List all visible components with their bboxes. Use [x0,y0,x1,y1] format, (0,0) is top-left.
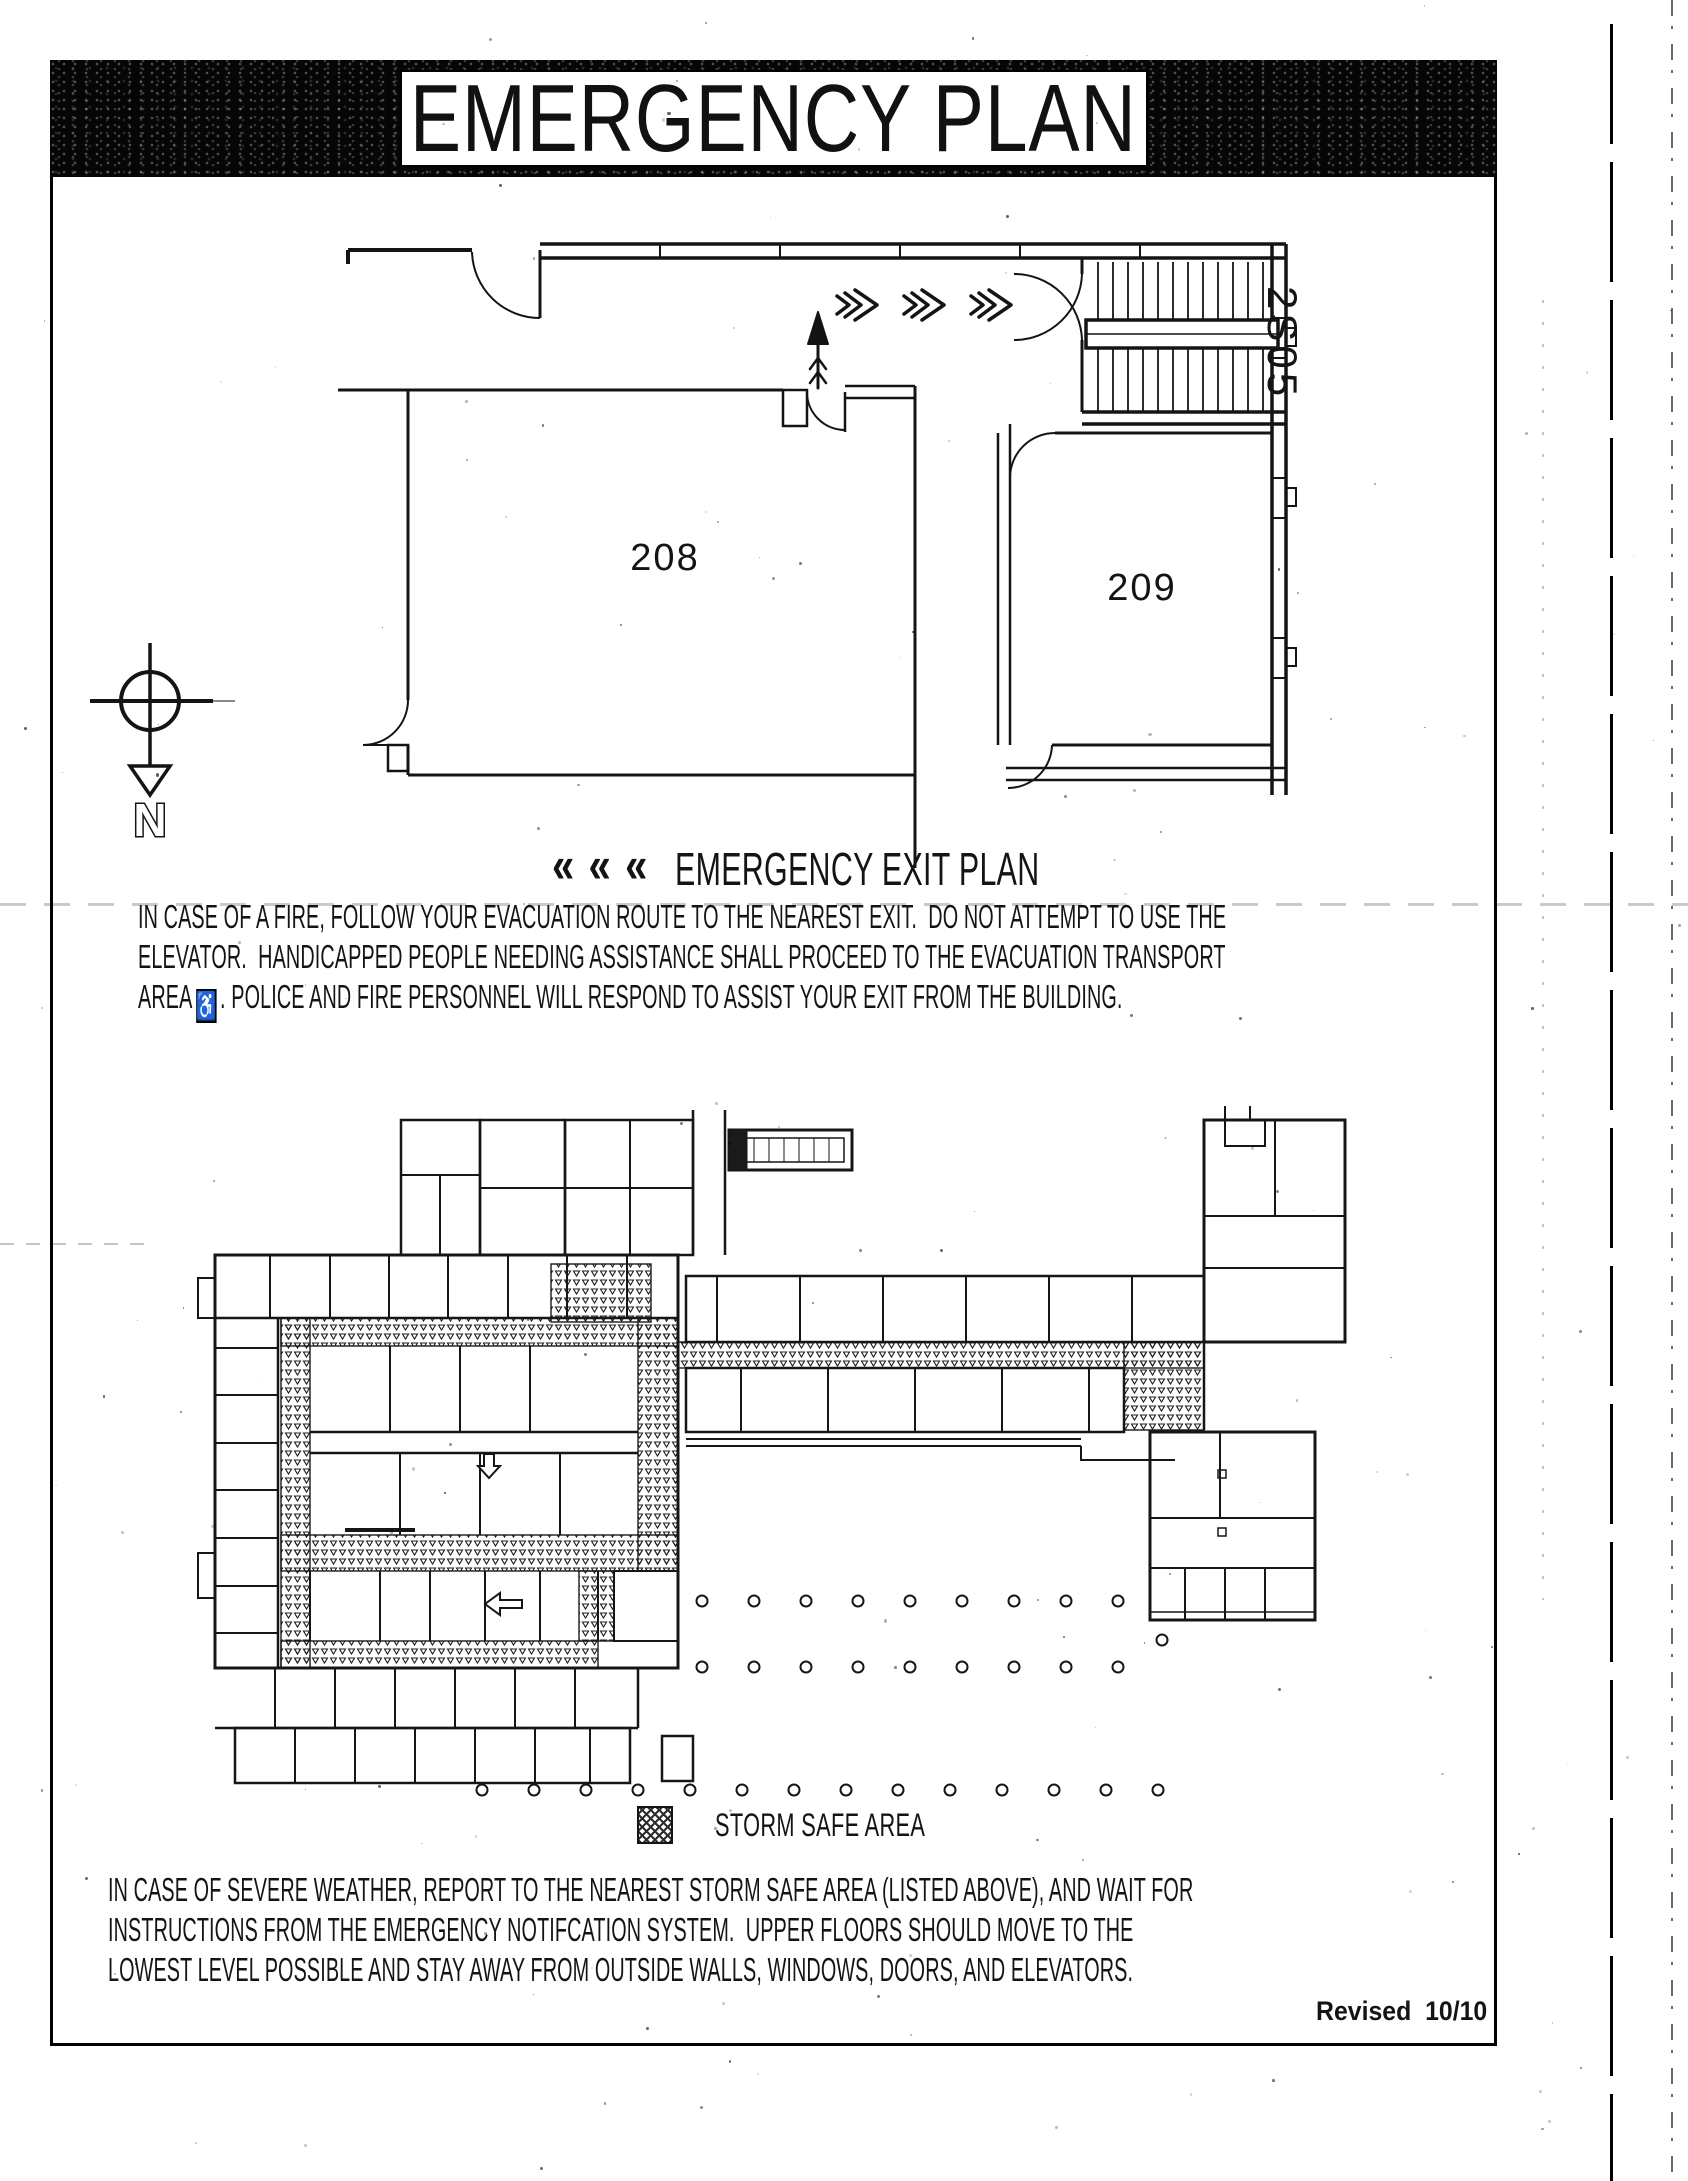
scan-noise-dot [700,2106,703,2109]
storm-notice-line2: INSTRUCTIONS FROM THE EMERGENCY NOTIFCAT… [108,1910,1193,1950]
scan-noise-dot [489,38,492,41]
scan-noise-dot [1424,5,1425,6]
banner: EMERGENCY PLAN [50,60,1497,177]
fire-notice-line3: AREA♿. POLICE AND FIRE PERSONNEL WILL RE… [138,977,1226,1023]
scan-noise-dot [1633,555,1635,557]
compass-icon [90,643,235,795]
scan-noise-dot [1532,1827,1535,1830]
scan-noise-dot [24,727,27,730]
exit-plan-heading: EMERGENCY EXIT PLAN [675,842,1040,896]
storm-legend: STORM SAFE AREA [637,1806,1024,1844]
scan-noise-dot [1541,2128,1544,2131]
scan-noise-dot [41,1007,43,1009]
scan-noise-dot [1539,2090,1542,2093]
scan-noise-dot [304,2144,307,2147]
scan-noise-dot [540,2167,543,2170]
scan-noise-dot [1518,1853,1519,1854]
wheelchair-icon: ♿ [196,989,216,1023]
storm-legend-label: STORM SAFE AREA [715,1807,925,1844]
upper-floor-plan: 208 209 2S05 [330,228,1310,878]
fire-notice: IN CASE OF A FIRE, FOLLOW YOUR EVACUATIO… [138,897,1688,1023]
exit-heading-row: « « « EMERGENCY EXIT PLAN [552,840,1228,898]
title-box: EMERGENCY PLAN [400,70,1148,167]
room-208-label: 208 [630,537,699,579]
scan-noise-dot [1586,371,1589,374]
revised-label: Revised 10/10 [1316,1996,1487,2027]
scan-noise-dot [1653,740,1654,741]
scan-noise-dot [1190,2093,1192,2095]
scan-noise-dot [1552,2022,1553,2023]
storm-notice-line3: LOWEST LEVEL POSSIBLE AND STAY AWAY FROM… [108,1950,1193,1990]
scan-noise-dot [1626,1756,1629,1759]
storm-notice: IN CASE OF SEVERE WEATHER, REPORT TO THE… [108,1870,1688,1990]
scan-noise-dot [1579,1330,1582,1333]
scan-noise-dot [1567,1764,1568,1765]
scan-noise-dot [757,2073,759,2075]
scan-noise-dot [41,1789,44,1792]
storm-safe-swatch-icon [637,1806,673,1844]
scan-noise-dot [1525,432,1528,435]
scan-noise-dot [1055,2126,1058,2129]
emergency-plan-page: EMERGENCY PLAN N [0,0,1688,2181]
fire-notice-line1: IN CASE OF A FIRE, FOLLOW YOUR EVACUATIO… [138,897,1226,937]
scan-noise-dot [1548,2120,1551,2123]
page-title: EMERGENCY PLAN [410,71,1137,167]
scan-noise-dot [1272,2079,1275,2082]
fire-notice-line2: ELEVATOR. HANDICAPPED PEOPLE NEEDING ASS… [138,937,1226,977]
scan-noise-dot [195,2142,197,2144]
lower-floor-plan [140,1098,1380,1822]
scan-noise-dot [1580,2067,1582,2069]
scan-noise-dot [729,2060,732,2063]
scan-noise-dot [1670,310,1671,311]
scan-noise-dot [972,37,975,40]
scan-noise-dot [604,2102,607,2105]
up-arrow-icon [808,312,828,388]
storm-notice-line1: IN CASE OF SEVERE WEATHER, REPORT TO THE… [108,1870,1193,1910]
left-chevrons-icon: « « « [552,836,649,894]
scan-artifact-line [1610,24,1613,2181]
room-209-label: 209 [1107,567,1176,609]
exit-route-arrows [808,290,1011,388]
scan-noise-dot [1086,55,1088,57]
scan-noise-dot [1614,634,1615,635]
scan-noise-dot [705,22,707,24]
building-walls [198,1106,1345,1783]
compass-n-label: N [133,794,166,846]
scan-artifact-line [1671,0,1673,2181]
north-compass: N [85,598,255,858]
stairwell-2s05-label: 2S05 [1259,286,1306,400]
scan-noise-dot [44,320,45,321]
